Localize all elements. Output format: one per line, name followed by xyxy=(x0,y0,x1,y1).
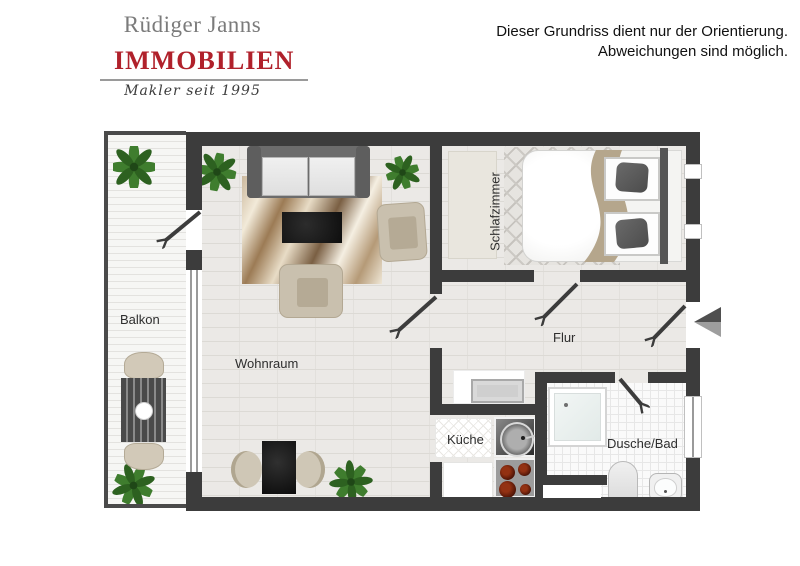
balcony-table-plate xyxy=(135,402,153,420)
room-label-balkon: Balkon xyxy=(120,312,160,327)
wall-segment xyxy=(430,348,442,415)
logo-tagline: Makler seit 1995 xyxy=(100,83,285,99)
bed-pillow-dark xyxy=(615,162,649,193)
shower-tray xyxy=(548,387,607,447)
wall-segment xyxy=(104,131,108,508)
stove-burner xyxy=(520,484,531,495)
company-logo: Rüdiger Janns IMMOBILIEN Makler seit 199… xyxy=(100,12,285,99)
sofa-armrest xyxy=(247,146,261,198)
bed-headboard xyxy=(660,148,668,264)
kitchen-counter xyxy=(443,462,493,498)
balcony-chair xyxy=(124,352,164,379)
plant-icon xyxy=(113,146,155,188)
bed-pillow-dark xyxy=(615,218,649,250)
bathroom-window xyxy=(684,396,702,458)
logo-company-name: Rüdiger Janns xyxy=(100,12,285,38)
wall-segment xyxy=(648,372,686,383)
logo-main-word: IMMOBILIEN xyxy=(100,46,308,81)
kitchen-sink xyxy=(494,417,536,457)
wall-segment xyxy=(547,372,615,383)
disclaimer: Dieser Grundriss dient nur der Orientier… xyxy=(496,22,788,62)
wall-segment xyxy=(430,146,442,294)
sofa xyxy=(247,146,370,198)
armchair-seat xyxy=(388,216,418,250)
hallway-sideboard xyxy=(453,370,525,404)
disclaimer-line-1: Dieser Grundriss dient nur der Orientier… xyxy=(496,22,788,42)
wall-segment xyxy=(430,462,442,497)
wall-segment xyxy=(186,497,700,511)
stove-burner xyxy=(500,465,515,480)
balcony-chair xyxy=(124,443,164,470)
room-label-kueche: Küche xyxy=(447,432,484,447)
armchair xyxy=(279,264,343,318)
toilet xyxy=(608,461,638,501)
room-label-flur: Flur xyxy=(553,330,575,345)
entrance-door-opening xyxy=(686,302,700,348)
sofa-armrest xyxy=(356,146,370,198)
wall-segment xyxy=(580,270,686,282)
wall-segment xyxy=(186,132,202,210)
stove xyxy=(494,458,536,498)
sofa-cushion xyxy=(309,157,355,196)
wall-niche xyxy=(543,485,601,498)
wall-segment xyxy=(535,475,607,485)
shower-drain xyxy=(564,403,568,407)
wall-segment xyxy=(186,472,202,497)
wall-segment xyxy=(104,131,186,135)
dining-chair xyxy=(231,451,262,488)
room-label-wohnraum: Wohnraum xyxy=(235,356,298,371)
room-label-bad: Dusche/Bad xyxy=(607,436,678,451)
stove-burner xyxy=(499,481,516,498)
wall-segment xyxy=(186,250,202,270)
disclaimer-line-2: Abweichungen sind möglich. xyxy=(496,42,788,62)
dining-table xyxy=(262,441,296,494)
armchair-seat xyxy=(297,278,328,307)
bedroom-window xyxy=(684,224,702,239)
bedroom-window xyxy=(684,164,702,179)
hallway-bench xyxy=(471,379,524,403)
coffee-table xyxy=(282,212,342,243)
room-label-schlafzimmer: Schlafzimmer xyxy=(488,166,503,258)
balcony-window xyxy=(186,270,202,472)
stove-burner xyxy=(518,463,531,476)
dining-chair xyxy=(294,451,325,488)
wall-segment xyxy=(186,132,700,146)
wall-segment xyxy=(104,504,186,508)
double-bed xyxy=(522,150,668,262)
armchair xyxy=(376,201,428,262)
sofa-cushion xyxy=(262,157,308,196)
wall-segment xyxy=(442,270,534,282)
wall-segment xyxy=(442,404,536,415)
